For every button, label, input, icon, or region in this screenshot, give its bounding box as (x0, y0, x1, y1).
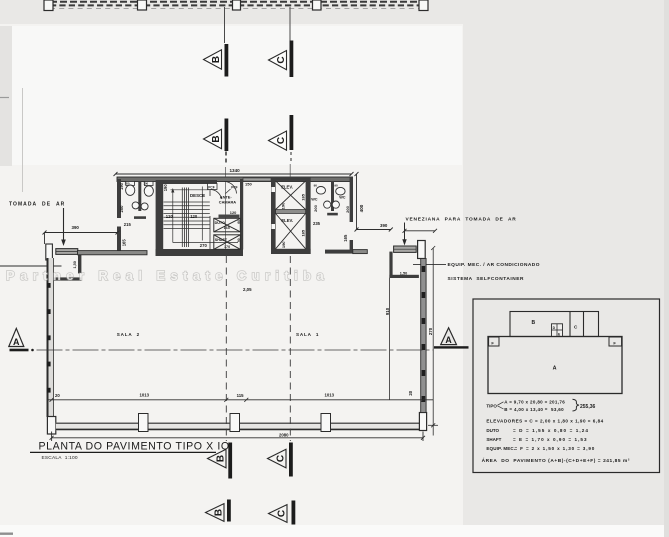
svg-text:165: 165 (122, 239, 127, 247)
svg-text:SHAFT: SHAFT (215, 238, 228, 242)
svg-text:VENEZIANA PARA TOMADA DE A: VENEZIANA PARA TOMADA DE AR (406, 217, 517, 223)
svg-text:EQUIP. MEC. / AR CONDICIONADO: EQUIP. MEC. / AR CONDICIONADO (448, 262, 540, 268)
svg-text:390: 390 (380, 223, 388, 228)
svg-text:400: 400 (359, 204, 364, 212)
svg-text:150: 150 (245, 181, 252, 186)
svg-text:120: 120 (190, 214, 198, 219)
svg-text:C: C (276, 455, 287, 462)
svg-text:1013: 1013 (325, 393, 335, 398)
svg-text:A: A (553, 365, 557, 371)
svg-text:PLANTA DO PAVIMENTO TIPO X IO: PLANTA DO PAVIMENTO TIPO X IO (39, 441, 230, 453)
svg-text:190: 190 (119, 182, 124, 190)
svg-text:SALA 2: SALA 2 (117, 332, 140, 337)
svg-text:90: 90 (334, 183, 338, 187)
svg-text:2080: 2080 (279, 433, 289, 438)
svg-text:B: B (211, 135, 222, 142)
svg-text:CAMARA: CAMARA (219, 200, 236, 205)
svg-text:B = 4,00 x 13,40 = 53,60: B = 4,00 x 13,40 = 53,60 (504, 407, 564, 412)
svg-text:WC: WC (311, 197, 318, 201)
svg-text:190: 190 (280, 202, 285, 209)
svg-text:170: 170 (224, 245, 230, 249)
svg-text:1013: 1013 (140, 393, 150, 398)
svg-text:DUTO: DUTO (215, 221, 226, 225)
svg-text:215: 215 (124, 222, 132, 227)
svg-text:910: 910 (385, 307, 390, 315)
svg-text:200: 200 (345, 205, 350, 212)
svg-text:A: A (445, 335, 452, 345)
svg-text:20: 20 (55, 393, 60, 398)
svg-text:B: B (216, 455, 227, 462)
svg-text:A = 9,70 x 20,80 = 201,76: A = 9,70 x 20,80 = 201,76 (504, 399, 565, 404)
svg-text:270: 270 (200, 243, 208, 248)
svg-text:B: B (214, 509, 225, 516)
svg-text:ELEV.: ELEV. (281, 218, 293, 223)
svg-text:165: 165 (224, 226, 230, 230)
svg-text:A: A (13, 337, 20, 347)
svg-text:ESCALA 1:100: ESCALA 1:100 (42, 455, 78, 461)
svg-text:185: 185 (300, 193, 305, 200)
svg-text:60: 60 (237, 220, 241, 224)
svg-text:190: 190 (281, 241, 286, 248)
svg-text:90: 90 (314, 183, 318, 187)
svg-text:PCF: PCF (208, 185, 214, 189)
svg-text:DESCE: DESCE (190, 193, 205, 198)
svg-text:185: 185 (300, 229, 305, 236)
svg-text:200: 200 (119, 205, 124, 213)
svg-text:235: 235 (313, 221, 321, 226)
svg-text:120: 120 (230, 210, 237, 215)
svg-text:TIPO: TIPO (486, 403, 497, 408)
svg-text:100: 100 (125, 182, 130, 186)
svg-text:B: B (211, 56, 222, 63)
svg-text:90: 90 (237, 238, 241, 242)
svg-text:Partner Real Estate Curitiba: Partner Real Estate Curitiba (6, 268, 329, 283)
svg-text:120: 120 (166, 214, 174, 219)
svg-text:ELEV.: ELEV. (281, 184, 293, 189)
svg-text:200: 200 (313, 204, 318, 211)
svg-text:= D = 1,55 x 0,80 = 1,24: = D = 1,55 x 0,80 = 1,24 (513, 428, 589, 433)
svg-text:115: 115 (237, 393, 245, 398)
svg-text:EQUIP. MEC.: EQUIP. MEC. (486, 446, 515, 451)
svg-text:SALA 1: SALA 1 (296, 332, 319, 337)
svg-text:255,36: 255,36 (580, 404, 596, 410)
svg-text:C: C (277, 510, 288, 517)
svg-text:C: C (276, 56, 287, 63)
svg-text:C: C (276, 137, 287, 144)
svg-text:165: 165 (343, 234, 348, 242)
svg-text:WC: WC (339, 196, 346, 200)
svg-text:1,50: 1,50 (400, 272, 407, 276)
svg-text:20: 20 (408, 390, 413, 395)
svg-text:ÁREA DO PAVIMENTO (A+B)-(C+D: ÁREA DO PAVIMENTO (A+B)-(C+D+E+F) = 241,… (482, 457, 630, 464)
svg-text:SHAFT: SHAFT (486, 437, 501, 442)
svg-text:100: 100 (143, 182, 148, 186)
svg-text:SISTEMA SELFCONTAINER: SISTEMA SELFCONTAINER (448, 276, 525, 282)
svg-text:= E = 1,70 x 0,90 = 1,53: = E = 1,70 x 0,90 = 1,53 (513, 437, 588, 442)
svg-text:= F = 2 x 1,50 x 1,30 = 3,90: = F = 2 x 1,50 x 1,30 = 3,90 (515, 446, 596, 451)
svg-text:270: 270 (428, 327, 433, 335)
svg-text:190: 190 (163, 184, 168, 192)
svg-text:2,05: 2,05 (243, 287, 252, 292)
svg-text:1340: 1340 (230, 168, 241, 173)
svg-text:390: 390 (72, 225, 80, 230)
svg-text:TOMADA DE AR: TOMADA DE AR (9, 201, 65, 207)
svg-text:DUTO: DUTO (486, 428, 499, 433)
svg-text:B: B (532, 320, 536, 326)
svg-text:ELEVADORES = C = 2,00 x 1,80 x: ELEVADORES = C = 2,00 x 1,80 x 1,90 = 6,… (486, 418, 603, 423)
